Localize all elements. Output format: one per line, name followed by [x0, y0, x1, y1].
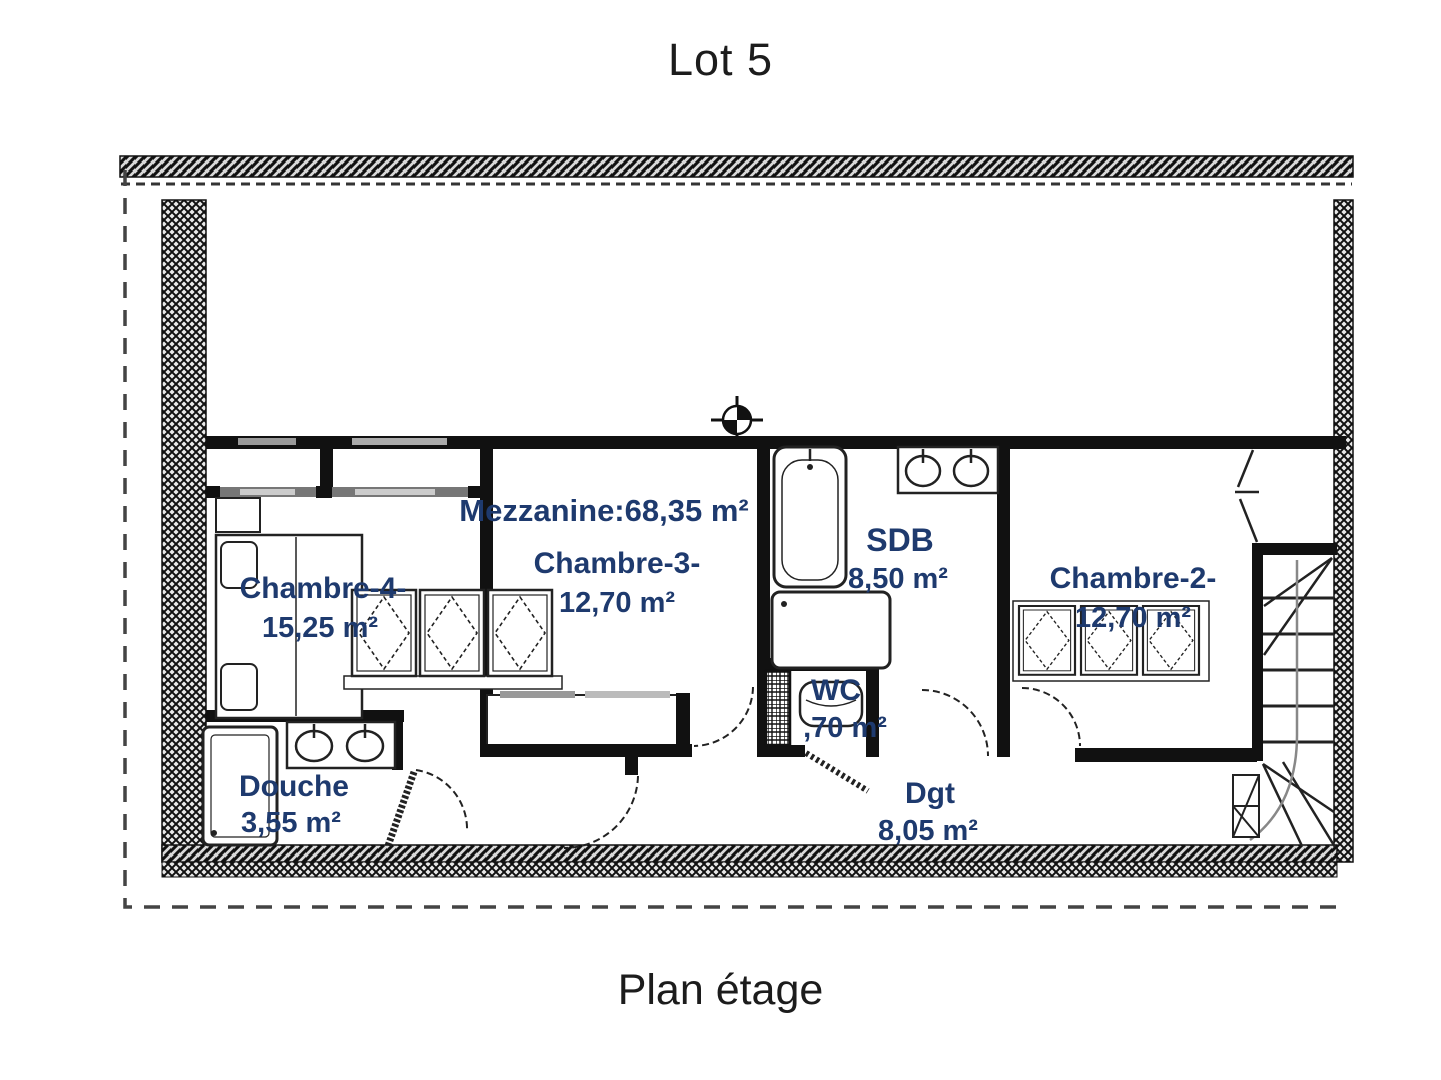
partition-cap	[316, 486, 332, 498]
wc-duct	[766, 671, 790, 745]
left-exterior-wall	[162, 200, 206, 862]
door-stub	[625, 757, 638, 775]
partition-opening	[240, 489, 295, 495]
door-arc	[564, 776, 638, 848]
top-exterior-wall	[120, 156, 1353, 177]
wall-opening	[352, 438, 447, 445]
chambre2-area: 12,70 m²	[1075, 602, 1191, 634]
closet-end-cap	[676, 693, 690, 752]
bed	[216, 498, 362, 718]
chambre4-name: Chambre-4-	[240, 572, 407, 605]
right-exterior-wall	[1334, 200, 1353, 862]
bathtub	[774, 447, 846, 587]
staircase	[1233, 450, 1337, 847]
stair-treads	[1263, 598, 1334, 742]
chambre3-closet	[487, 695, 683, 750]
door-arc	[416, 770, 467, 832]
double-sink-sdb	[898, 447, 998, 493]
chambre3-south-wall	[480, 744, 692, 757]
double-sink-douche	[287, 722, 395, 768]
douche-diagonal-wall	[388, 772, 414, 846]
dgt-name: Dgt	[905, 777, 955, 810]
wc-name: WC	[811, 674, 861, 707]
chambre2-south-wall	[1075, 748, 1257, 762]
nightstand	[216, 498, 260, 532]
wc-area: ,70 m²	[803, 712, 887, 744]
chambre2-name: Chambre-2-	[1050, 562, 1217, 595]
chambre4-area: 15,25 m²	[262, 612, 378, 644]
stair-winders	[1263, 558, 1335, 847]
partition-opening	[355, 489, 435, 495]
bottom-exterior-wall-lower	[162, 862, 1337, 877]
chambre3-name: Chambre-3-	[534, 547, 701, 580]
wc-door-leaf	[806, 753, 868, 791]
chamfer-corner	[1235, 450, 1259, 542]
closet-door-track	[585, 691, 670, 698]
douche-name: Douche	[239, 770, 349, 803]
door-arc	[1022, 688, 1080, 746]
sdb-name: SDB	[866, 522, 934, 558]
door-arc	[922, 690, 988, 756]
dgt-area: 8,05 m²	[878, 815, 978, 847]
douche-area: 3,55 m²	[241, 807, 341, 839]
page-title: Lot 5	[0, 34, 1441, 86]
bottom-exterior-wall-upper	[162, 845, 1337, 862]
mezzanine-label: Mezzanine:68,35 m²	[459, 493, 748, 528]
floor-plan-drawing: Mezzanine:68,35 m² Chambre-4- 15,25 m² C…	[0, 0, 1441, 1080]
chambre3-area: 12,70 m²	[559, 587, 675, 619]
floor-plan-page: Lot 5	[0, 0, 1441, 1080]
wc-south-wall	[757, 745, 805, 757]
stair-north-wall	[1252, 543, 1337, 555]
sdb-shower-tray	[772, 592, 890, 668]
closet-door-track	[500, 691, 575, 698]
door-arc	[694, 687, 753, 746]
plan-caption: Plan étage	[0, 966, 1441, 1015]
wall-opening	[238, 438, 296, 445]
sdb-area: 8,50 m²	[848, 563, 948, 595]
partition-cap	[206, 486, 220, 498]
stair-west-wall	[1252, 543, 1263, 761]
